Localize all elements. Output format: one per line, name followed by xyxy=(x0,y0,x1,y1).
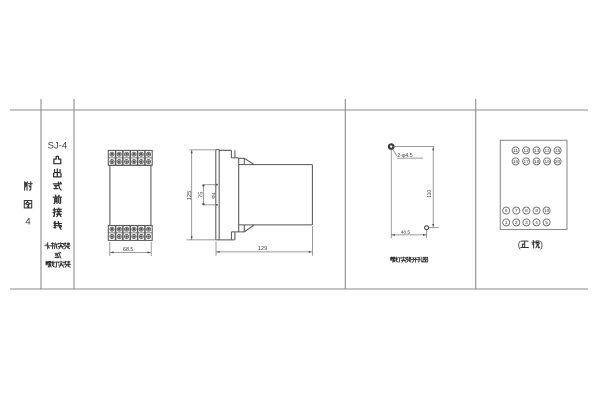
svg-text:16: 16 xyxy=(513,159,519,164)
svg-text:11: 11 xyxy=(513,148,518,153)
svg-text:8: 8 xyxy=(525,208,528,213)
svg-text:): ) xyxy=(540,239,543,249)
svg-text:129: 129 xyxy=(258,246,267,252)
svg-text:13: 13 xyxy=(534,148,540,153)
svg-text:14: 14 xyxy=(544,148,550,153)
svg-text:4: 4 xyxy=(535,220,538,225)
svg-text:6: 6 xyxy=(505,208,508,213)
svg-text:48.5: 48.5 xyxy=(401,230,411,236)
svg-text:4: 4 xyxy=(25,217,30,228)
svg-text:3: 3 xyxy=(525,220,528,225)
svg-text:10: 10 xyxy=(544,208,550,213)
svg-text:17: 17 xyxy=(523,159,529,164)
svg-text:110: 110 xyxy=(427,190,433,198)
svg-text:Φ4: Φ4 xyxy=(211,192,216,199)
svg-text:9: 9 xyxy=(535,208,538,213)
svg-text:68.5: 68.5 xyxy=(123,247,133,253)
svg-text:1: 1 xyxy=(505,220,508,225)
svg-text:18: 18 xyxy=(534,159,540,164)
svg-text:7: 7 xyxy=(515,208,518,213)
svg-text:12: 12 xyxy=(523,148,529,153)
svg-text:125: 125 xyxy=(187,191,193,201)
svg-text:15: 15 xyxy=(555,148,561,153)
svg-text:5: 5 xyxy=(545,220,548,225)
svg-text:19: 19 xyxy=(544,159,550,164)
svg-text:75: 75 xyxy=(198,192,204,198)
svg-text:(: ( xyxy=(518,239,521,249)
svg-text:SJ-4: SJ-4 xyxy=(48,140,68,151)
svg-text:20: 20 xyxy=(555,159,561,164)
svg-text:2: 2 xyxy=(515,220,518,225)
svg-text:2-φ4.5: 2-φ4.5 xyxy=(397,153,412,159)
